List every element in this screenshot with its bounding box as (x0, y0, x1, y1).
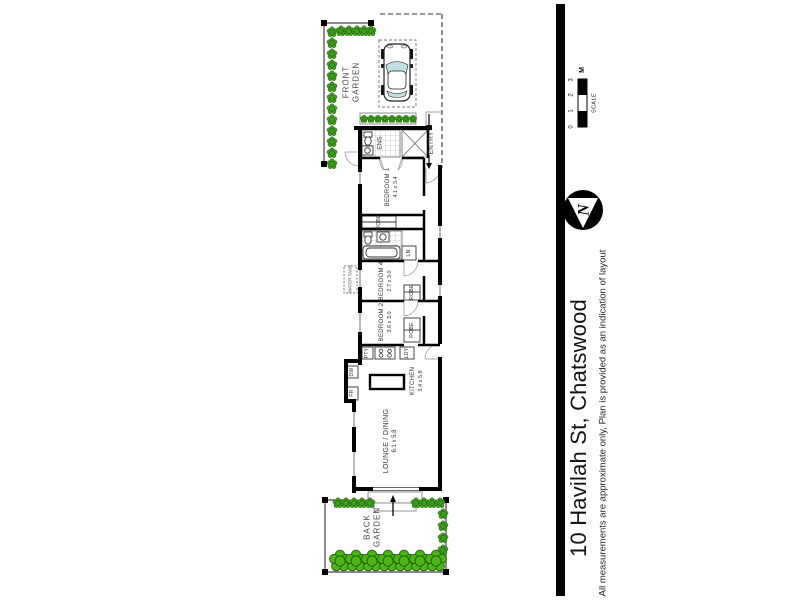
room-label-ens: ENS (377, 136, 385, 149)
room-label-pantry: PTY (364, 348, 370, 359)
scale-tick-3: 3 (568, 78, 575, 81)
room-label-linen: LN (406, 250, 412, 257)
north-arrow-icon: N (563, 190, 603, 230)
scale-tick-1: 1 (568, 109, 575, 112)
scale-label: SCALE (592, 93, 599, 113)
room-label-bedroom2: BEDROOM 2 3.6 x 3.0 (379, 303, 393, 342)
car-icon (381, 44, 413, 101)
entry-label: ENTRY (428, 132, 436, 155)
scale-tick-0: 0 (568, 125, 575, 128)
address-title: 10 Havilah St, Chatswood (566, 299, 592, 557)
room-label-kitchen: KITCHEN 3.4 x 5.8 (410, 367, 424, 395)
disclaimer-text: All measurements are approximate only, P… (597, 250, 608, 597)
room-label-lounge: LOUNGE / DINING 6.1 x 5.8 (383, 409, 399, 473)
front-garden-label: FRONT GARDEN (341, 62, 360, 102)
panel-divider-bar (556, 4, 565, 596)
scale-bar (578, 79, 587, 127)
floor-plan-drawing: N (0, 0, 800, 600)
room-label-bedroom1: BEDROOM 1 4.1 x 3.4 (385, 168, 399, 207)
back-garden-label: BACK GARDEN (362, 507, 381, 547)
room-label-fridge: FR (349, 389, 355, 396)
room-label-laundry: LDY (404, 348, 410, 359)
north-letter: N (576, 203, 593, 217)
room-label-dishwasher: DW (349, 368, 355, 377)
entry-void-xbox (402, 130, 428, 157)
scale-unit-label: M (579, 67, 587, 73)
room-label-robe2: ROBE (409, 322, 415, 337)
room-label-robe1: ROBE (376, 214, 382, 229)
back-garden-bushes (330, 550, 447, 571)
room-label-robe4: ROBE (409, 284, 415, 299)
kitchen-island (370, 375, 404, 389)
floorplan-page: N FRONT GARDEN BACK GARDEN ENTRY WATER T… (0, 0, 800, 600)
room-label-bedroom4: BEDROOM 4 2.7 x 3.0 (379, 262, 393, 301)
water-tank-label: WATER TANK (347, 265, 352, 294)
scale-tick-2: 2 (568, 93, 575, 96)
